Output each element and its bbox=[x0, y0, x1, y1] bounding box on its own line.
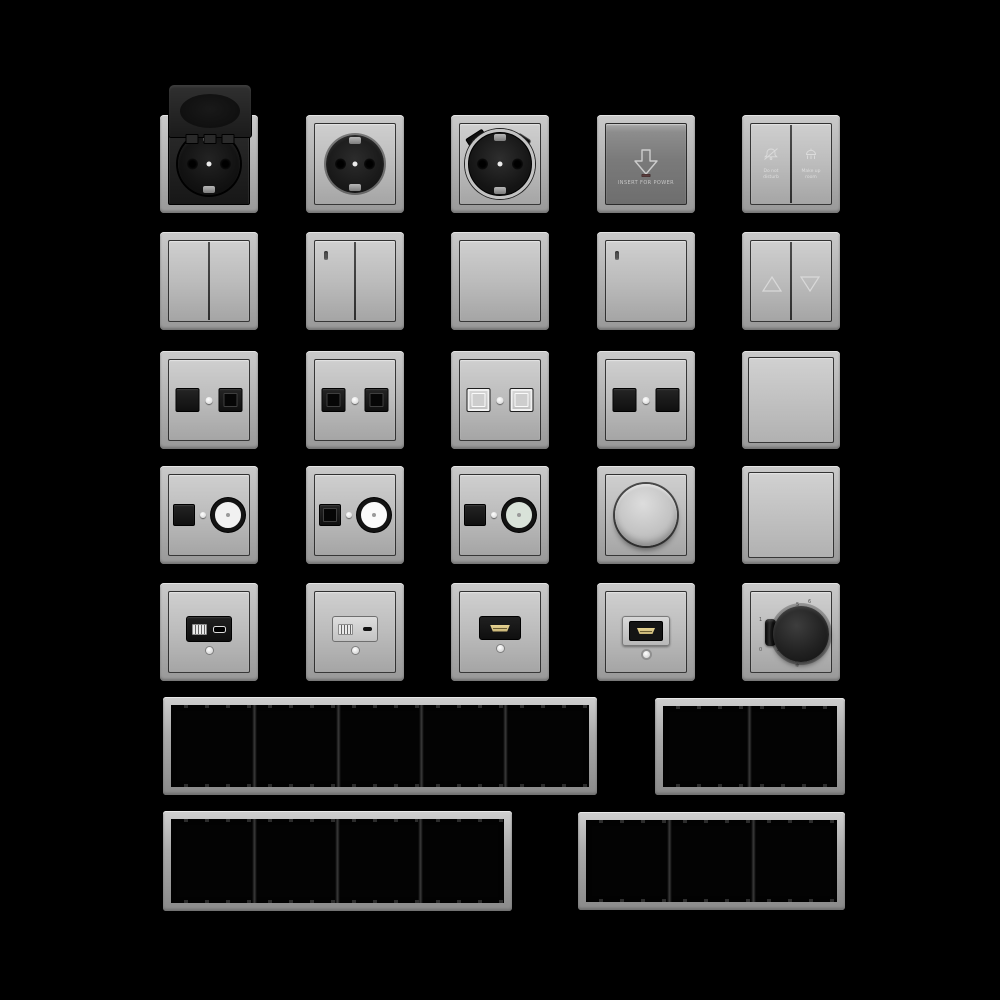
do-not-disturb-service-switch: Do not disturb bbox=[742, 115, 840, 213]
plate-face bbox=[605, 359, 687, 441]
combo-module bbox=[319, 498, 391, 532]
hdmi-module bbox=[479, 616, 521, 640]
dual-data-socket-keystone bbox=[306, 351, 404, 449]
make-up-room-label: Make up room bbox=[791, 169, 831, 181]
blank-cover-plate-2 bbox=[742, 466, 840, 564]
data-port bbox=[464, 504, 486, 526]
data-port-right bbox=[219, 388, 243, 412]
schuko-outlet-recess bbox=[465, 129, 535, 199]
center-highlight bbox=[353, 162, 358, 167]
thermostat-dial: 1 0 6 5 4 3 2 ❄ bbox=[742, 583, 840, 681]
label-line-1: Make up bbox=[802, 169, 821, 174]
frame-divider bbox=[252, 819, 257, 903]
plate-face bbox=[168, 359, 250, 441]
rotary-dimmer bbox=[597, 466, 695, 564]
do-not-disturb-rocker: Do not disturb bbox=[751, 124, 791, 204]
pin-hole-right bbox=[220, 159, 231, 170]
combo-module bbox=[173, 498, 245, 532]
module-stack bbox=[186, 616, 232, 654]
hdmi-module bbox=[622, 616, 670, 646]
fixing-dot bbox=[206, 647, 213, 654]
plate-frame bbox=[451, 583, 549, 681]
plate-frame bbox=[597, 232, 695, 330]
plate-face bbox=[605, 591, 687, 673]
double-rocker-switch bbox=[160, 232, 258, 330]
frame-divider bbox=[503, 705, 508, 787]
bell-slash-icon bbox=[762, 146, 780, 166]
plate-frame bbox=[742, 351, 840, 449]
plate-frame bbox=[160, 351, 258, 449]
module-stack bbox=[479, 616, 521, 652]
double-rocker-face bbox=[168, 240, 250, 322]
hotel-keycard-power-switch: INSERT FOR POWER bbox=[597, 115, 695, 213]
thermostat-face: 1 0 6 5 4 3 2 ❄ bbox=[750, 591, 832, 673]
status-led bbox=[642, 174, 651, 177]
triangle-up-icon bbox=[761, 275, 783, 297]
plate-frame bbox=[160, 232, 258, 330]
shutter-rocker-switch bbox=[742, 232, 840, 330]
plate-face bbox=[314, 123, 396, 205]
data-port-right bbox=[656, 388, 680, 412]
plate-face bbox=[314, 474, 396, 556]
schuko-outlet-recess bbox=[326, 135, 384, 193]
usb-charger-module bbox=[332, 616, 378, 642]
plate-face bbox=[314, 359, 396, 441]
data-port-left bbox=[176, 388, 200, 412]
label-line-2: room bbox=[805, 175, 817, 180]
ground-clip-bottom bbox=[494, 187, 506, 194]
label-line-1: Do not bbox=[763, 169, 778, 174]
combo-module bbox=[464, 498, 536, 532]
coax-connector bbox=[211, 498, 245, 532]
frame-divider bbox=[751, 820, 756, 902]
pin-hole-left bbox=[187, 159, 198, 170]
single-rocker-switch bbox=[451, 232, 549, 330]
schuko-socket-hinged-lid-black bbox=[160, 84, 258, 214]
frame-openings bbox=[171, 819, 504, 903]
rocker-face bbox=[459, 240, 541, 322]
fixing-dot bbox=[497, 645, 504, 652]
plate-face bbox=[605, 474, 687, 556]
hdmi-socket-black bbox=[451, 583, 549, 681]
frame-divider bbox=[667, 820, 672, 902]
frame-divider bbox=[252, 705, 257, 787]
usb-a-port bbox=[192, 624, 207, 635]
coax-connector bbox=[357, 498, 391, 532]
plate-frame bbox=[306, 232, 404, 330]
hdmi-port bbox=[637, 628, 655, 634]
usb-charger-module bbox=[186, 616, 232, 642]
hdmi-socket-gray bbox=[597, 583, 695, 681]
keycard-label: INSERT FOR POWER bbox=[606, 180, 686, 186]
data-module bbox=[613, 388, 680, 412]
center-dot bbox=[206, 397, 213, 404]
plate-frame bbox=[742, 232, 840, 330]
frame-divider bbox=[419, 705, 424, 787]
data-module bbox=[176, 388, 243, 412]
keycard-face: INSERT FOR POWER bbox=[605, 123, 687, 205]
ground-clip-bottom bbox=[349, 184, 361, 191]
plate-frame: Do not disturb bbox=[742, 115, 840, 213]
plate-frame bbox=[742, 466, 840, 564]
frame-divider bbox=[335, 819, 340, 903]
double-rocker-face bbox=[314, 240, 396, 322]
plate-face bbox=[168, 591, 250, 673]
indicator-led bbox=[324, 251, 328, 260]
center-dot bbox=[643, 397, 650, 404]
frame-5-gang bbox=[163, 697, 597, 795]
frame-divider bbox=[747, 706, 752, 787]
cleaning-brush-icon bbox=[802, 146, 820, 166]
switch-off-mark: 0 bbox=[759, 648, 762, 653]
center-dot bbox=[352, 397, 359, 404]
frost-icon: ❄ bbox=[795, 664, 799, 669]
data-port-right bbox=[365, 388, 389, 412]
plate-frame bbox=[160, 466, 258, 564]
usb-c-port bbox=[363, 627, 372, 631]
dual-data-socket-black bbox=[597, 351, 695, 449]
usb-charger-black bbox=[160, 583, 258, 681]
plate-frame bbox=[451, 115, 549, 213]
pin-hole-right bbox=[512, 159, 523, 170]
pin-hole-right bbox=[364, 159, 375, 170]
center-highlight bbox=[498, 162, 503, 167]
plate-frame bbox=[597, 466, 695, 564]
hinged-lid-open bbox=[168, 84, 252, 138]
dual-data-socket bbox=[160, 351, 258, 449]
thermostat-knob bbox=[773, 606, 829, 662]
plate-frame bbox=[306, 466, 404, 564]
double-rocker-face bbox=[750, 240, 832, 322]
schuko-socket-usb-a-c bbox=[451, 115, 549, 213]
blank-face bbox=[748, 357, 834, 443]
fixing-dot bbox=[352, 647, 359, 654]
single-rocker-switch-indicator bbox=[597, 232, 695, 330]
center-dot bbox=[346, 512, 352, 518]
coax-connector bbox=[502, 498, 536, 532]
plate-frame bbox=[451, 232, 549, 330]
dimmer-knob bbox=[615, 484, 677, 546]
data-module bbox=[322, 388, 389, 412]
data-port-right bbox=[510, 388, 534, 412]
blank-face bbox=[748, 472, 834, 558]
data-coax-combo-socket-2 bbox=[306, 466, 404, 564]
triangle-down-icon bbox=[799, 275, 821, 297]
module-stack bbox=[622, 616, 670, 658]
ground-clip-top bbox=[349, 137, 361, 144]
plate-frame bbox=[451, 351, 549, 449]
data-port-left bbox=[467, 388, 491, 412]
plate-frame: 1 0 6 5 4 3 2 ❄ bbox=[742, 583, 840, 681]
plate-face bbox=[168, 474, 250, 556]
double-rocker-switch-indicator bbox=[306, 232, 404, 330]
usb-charger-light bbox=[306, 583, 404, 681]
plate-frame bbox=[306, 351, 404, 449]
fixing-dot bbox=[643, 651, 650, 658]
lid-inner-oval bbox=[180, 94, 240, 128]
plate-frame bbox=[597, 351, 695, 449]
plate-frame bbox=[451, 466, 549, 564]
lid-hinge bbox=[186, 134, 235, 144]
rocker-face bbox=[605, 240, 687, 322]
data-port bbox=[319, 504, 341, 526]
frame-divider bbox=[418, 819, 423, 903]
data-port bbox=[173, 504, 195, 526]
center-dot bbox=[491, 512, 497, 518]
data-coax-combo-socket bbox=[160, 466, 258, 564]
render-sheet: INSERT FOR POWER Do not disturb bbox=[0, 0, 1000, 1000]
data-coax-combo-socket-3 bbox=[451, 466, 549, 564]
frame-4-gang bbox=[163, 811, 512, 911]
frame-openings bbox=[171, 705, 589, 787]
plate-face bbox=[459, 474, 541, 556]
dual-data-socket-shuttered bbox=[451, 351, 549, 449]
center-dot bbox=[200, 512, 206, 518]
usb-c-port bbox=[213, 626, 226, 633]
data-port-left bbox=[613, 388, 637, 412]
blank-cover-plate bbox=[742, 351, 840, 449]
scale-6: 6 bbox=[808, 600, 811, 605]
frame-divider bbox=[336, 705, 341, 787]
data-module bbox=[467, 388, 534, 412]
frame-openings bbox=[586, 820, 837, 902]
hdmi-port bbox=[490, 625, 510, 632]
plate-face bbox=[314, 591, 396, 673]
plate-frame bbox=[306, 115, 404, 213]
center-highlight bbox=[207, 162, 212, 167]
plate-frame bbox=[597, 583, 695, 681]
pin-hole-left bbox=[477, 159, 488, 170]
module-stack bbox=[332, 616, 378, 654]
ground-clip-top bbox=[494, 134, 506, 141]
do-not-disturb-label: Do not disturb bbox=[751, 169, 791, 181]
schuko-socket-gray bbox=[306, 115, 404, 213]
plate-face bbox=[459, 359, 541, 441]
plate-frame: INSERT FOR POWER bbox=[597, 115, 695, 213]
data-port-left bbox=[322, 388, 346, 412]
make-up-room-rocker: Make up room bbox=[791, 124, 831, 204]
ground-clip-bottom bbox=[203, 186, 215, 193]
plate-frame bbox=[306, 583, 404, 681]
indicator-led bbox=[615, 251, 619, 260]
frame-openings bbox=[663, 706, 837, 787]
center-dot bbox=[497, 397, 504, 404]
label-line-2: disturb bbox=[763, 175, 779, 180]
plate-face bbox=[459, 591, 541, 673]
double-rocker-face: Do not disturb bbox=[750, 123, 832, 205]
plate-face bbox=[459, 123, 541, 205]
frame-3-gang bbox=[578, 812, 845, 910]
plate-frame bbox=[160, 583, 258, 681]
frame-2-gang bbox=[655, 698, 845, 795]
hdmi-recess bbox=[629, 621, 663, 641]
usb-a-port bbox=[338, 624, 353, 635]
switch-on-mark: 1 bbox=[759, 618, 762, 623]
pin-hole-left bbox=[335, 159, 346, 170]
